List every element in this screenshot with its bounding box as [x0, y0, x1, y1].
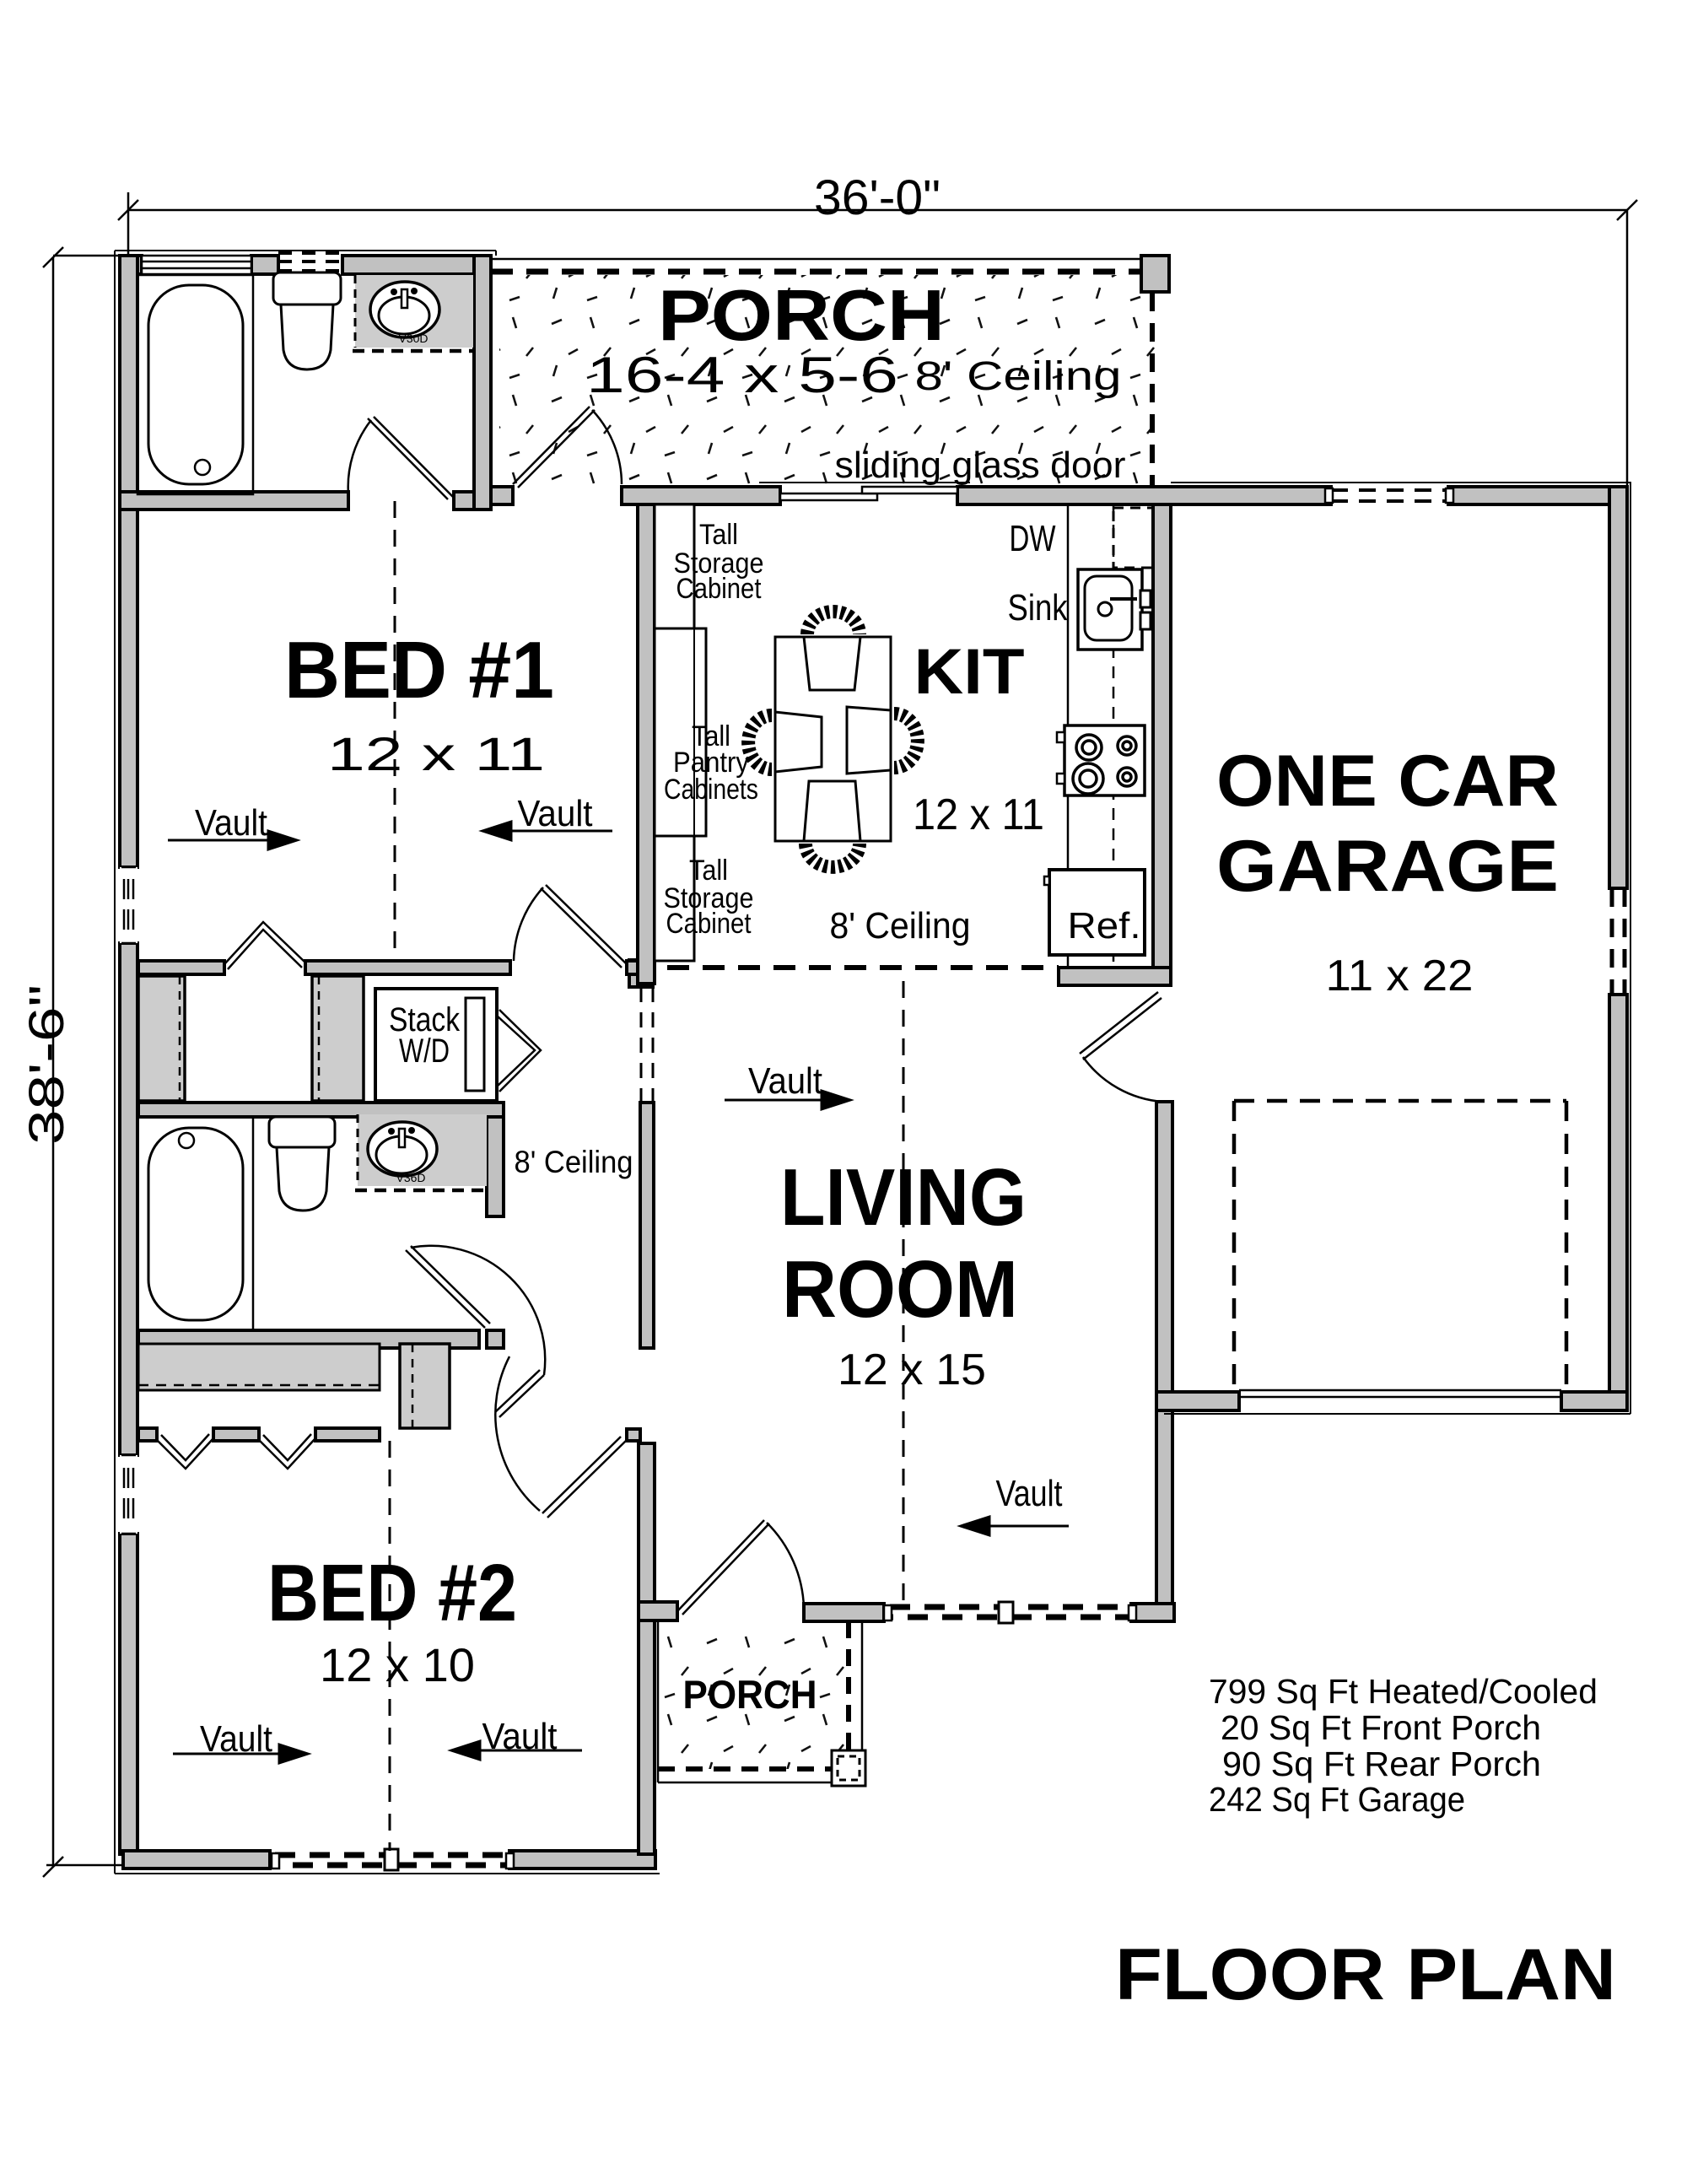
svg-text:Tall: Tall — [699, 519, 738, 551]
svg-text:799 Sq Ft Heated/Cooled: 799 Sq Ft Heated/Cooled — [1209, 1672, 1598, 1711]
svg-text:ONE CAR: ONE CAR — [1216, 741, 1559, 822]
svg-text:8' Ceiling: 8' Ceiling — [830, 905, 971, 946]
svg-text:BED #1: BED #1 — [284, 625, 554, 715]
svg-text:FLOOR PLAN: FLOOR PLAN — [1115, 1934, 1616, 2015]
svg-text:V30D: V30D — [398, 332, 428, 345]
svg-text:KIT: KIT — [914, 636, 1025, 708]
svg-text:PORCH: PORCH — [683, 1672, 817, 1717]
svg-text:PORCH: PORCH — [658, 276, 945, 356]
svg-text:Vault: Vault — [996, 1473, 1063, 1514]
svg-text:11 x 22: 11 x 22 — [1326, 952, 1474, 1000]
svg-text:Sink: Sink — [1008, 587, 1069, 628]
svg-text:12 x 11: 12 x 11 — [913, 790, 1044, 839]
svg-text:DW: DW — [1010, 518, 1056, 559]
svg-text:W/D: W/D — [399, 1033, 450, 1070]
svg-text:V36D: V36D — [396, 1171, 425, 1184]
svg-text:12 x 15: 12 x 15 — [838, 1345, 986, 1394]
svg-text:20 Sq Ft Front Porch: 20 Sq Ft Front Porch — [1221, 1708, 1541, 1747]
svg-text:242 Sq Ft Garage: 242 Sq Ft Garage — [1209, 1780, 1465, 1819]
svg-text:8' Ceiling: 8' Ceiling — [915, 354, 1122, 399]
svg-text:LIVING: LIVING — [780, 1152, 1027, 1243]
svg-text:GARAGE: GARAGE — [1216, 826, 1559, 907]
svg-text:16-4 x 5-6: 16-4 x 5-6 — [586, 347, 898, 403]
svg-text:Vault: Vault — [748, 1060, 822, 1102]
svg-text:Cabinets: Cabinets — [664, 774, 758, 806]
svg-text:BED #2: BED #2 — [267, 1548, 517, 1638]
svg-text:8' Ceiling: 8' Ceiling — [515, 1145, 633, 1179]
svg-text:38'-6": 38'-6" — [19, 984, 74, 1145]
svg-text:12 x 11: 12 x 11 — [327, 727, 545, 780]
svg-text:sliding glass door: sliding glass door — [835, 445, 1126, 486]
svg-text:Cabinet: Cabinet — [666, 908, 752, 940]
svg-text:12 x 10: 12 x 10 — [320, 1638, 475, 1691]
svg-text:Ref.: Ref. — [1068, 905, 1141, 946]
svg-text:Cabinet: Cabinet — [676, 573, 762, 605]
svg-text:Vault: Vault — [195, 802, 267, 844]
svg-text:90 Sq Ft Rear Porch: 90 Sq Ft Rear Porch — [1222, 1745, 1541, 1783]
svg-text:Vault: Vault — [518, 793, 593, 834]
svg-text:ROOM: ROOM — [782, 1244, 1018, 1335]
svg-text:36'-0": 36'-0" — [814, 170, 941, 225]
